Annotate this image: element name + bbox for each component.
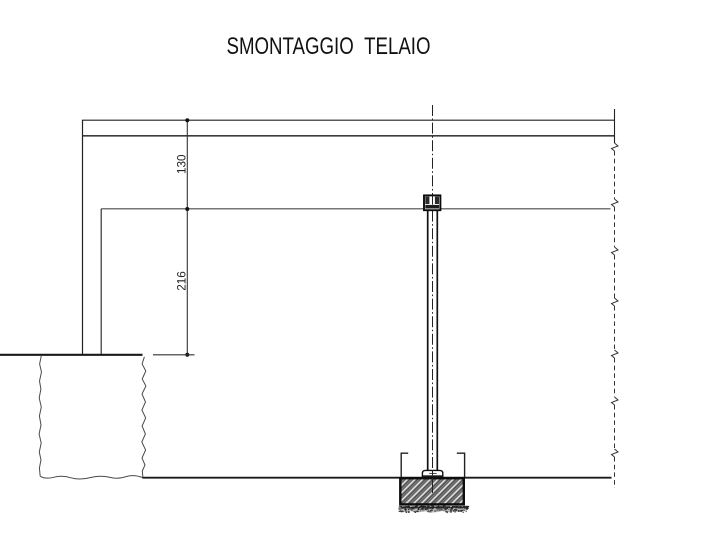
svg-text:SMONTAGGIO TELAIO: SMONTAGGIO TELAIO: [227, 33, 431, 60]
svg-text:216: 216: [175, 271, 189, 291]
svg-text:130: 130: [175, 154, 189, 174]
